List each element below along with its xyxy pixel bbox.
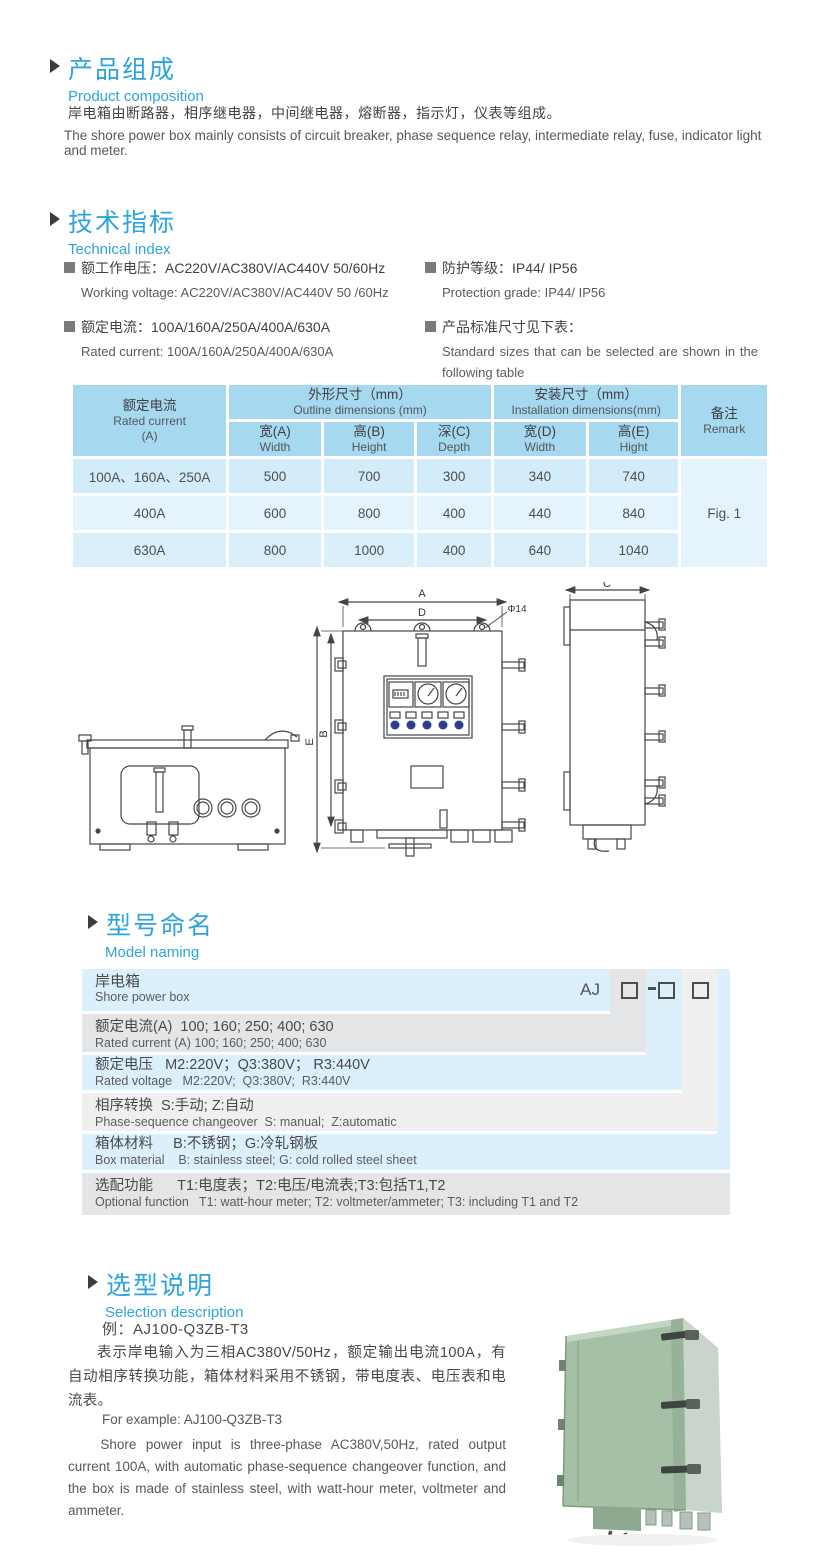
- section-arrow-icon: [88, 1275, 98, 1289]
- cell-remark: Fig. 1: [680, 458, 769, 569]
- cell-height-b: 1000: [322, 532, 415, 569]
- model-row-cn: 相序转换 S:手动; Z:自动: [95, 1098, 717, 1115]
- square-bullet-icon: [64, 262, 75, 273]
- bottom-view-drawing: [79, 726, 299, 850]
- cell-width-d: 640: [492, 532, 587, 569]
- header-cn: 额定电流: [75, 397, 224, 414]
- header-cn: 安装尺寸（mm）: [496, 386, 676, 403]
- header-en: Installation dimensions(mm): [496, 403, 676, 418]
- cell-width-a: 800: [228, 532, 323, 569]
- spec-cn: 产品标准尺寸见下表：: [442, 317, 582, 338]
- front-view-drawing: [317, 602, 525, 856]
- header-unit: (A): [75, 429, 224, 444]
- header-en: Rated current: [75, 414, 224, 429]
- table-row: 100A、160A、250A 500 700 300 340 740 Fig. …: [72, 458, 769, 495]
- section-title-cn: 技术指标: [68, 203, 176, 239]
- model-row-en: Rated current (A) 100; 160; 250; 400; 63…: [95, 1036, 646, 1051]
- cell-current: 100A、160A、250A: [72, 458, 228, 495]
- model-row-en: Phase-sequence changeover S: manual; Z:a…: [95, 1115, 717, 1130]
- cell-height-b: 800: [322, 495, 415, 532]
- cell-width-d: 440: [492, 495, 587, 532]
- dim-label-a: A: [418, 588, 426, 600]
- col-header-outline-dimensions: 外形尺寸（mm） Outline dimensions (mm): [228, 384, 493, 421]
- section-model-naming-header: 型号命名 Model naming: [88, 906, 214, 961]
- code-placeholder-box-1: [621, 982, 638, 999]
- selection-example-cn: 例：AJ100-Q3ZB-T3: [102, 1318, 249, 1339]
- cell-height-e: 1040: [587, 532, 680, 569]
- model-row-cn: 额定电流(A) 100; 160; 250; 400; 630: [95, 1019, 646, 1036]
- spec-column-left: 额工作电压：AC220V/AC380V/AC440V 50/60Hz Worki…: [64, 258, 425, 397]
- square-bullet-icon: [64, 321, 75, 332]
- header-cn: 宽(A): [231, 423, 319, 440]
- selection-body-en: Shore power input is three-phase AC380V,…: [68, 1434, 506, 1522]
- header-cn: 深(C): [419, 423, 489, 440]
- spec-cn: 额工作电压：AC220V/AC380V/AC440V 50/60Hz: [81, 258, 385, 279]
- spec-en: Working voltage: AC220V/AC380V/AC440V 50…: [81, 282, 425, 303]
- product-photo: [533, 1288, 823, 1568]
- col-header-height-e: 高(E) Hight: [587, 421, 680, 458]
- model-row-cn: 岸电箱: [95, 973, 610, 990]
- composition-text-en: The shore power box mainly consists of c…: [64, 128, 774, 158]
- header-en: Height: [326, 440, 412, 455]
- spec-column-right: 防护等级：IP44/ IP56 Protection grade: IP44/ …: [425, 258, 776, 397]
- header-cn: 高(B): [326, 423, 412, 440]
- header-en: Depth: [419, 440, 489, 455]
- model-code-prefix: AJ: [552, 969, 600, 1011]
- col-header-rated-current: 额定电流 Rated current (A): [72, 384, 228, 458]
- section-title-cn: 选型说明: [106, 1266, 214, 1302]
- header-en: Outline dimensions (mm): [231, 403, 489, 418]
- section-product-composition-header: 产品组成 Product composition: [50, 50, 204, 105]
- model-row-rated-voltage: 额定电压 M2:220V；Q3:380V； R3:440V Rated volt…: [82, 1055, 682, 1090]
- spec-cn: 防护等级：IP44/ IP56: [442, 258, 577, 279]
- cell-height-e: 840: [587, 495, 680, 532]
- header-en: Width: [496, 440, 584, 455]
- section-arrow-icon: [88, 915, 98, 929]
- spec-en: Rated current: 100A/160A/250A/400A/630A: [81, 341, 425, 362]
- code-placeholder-box-2: [658, 982, 675, 999]
- spec-rated-current: 额定电流：100A/160A/250A/400A/630A Rated curr…: [64, 317, 425, 368]
- model-row-en: Optional function T1: watt-hour meter; T…: [95, 1195, 730, 1210]
- col-header-width-d: 宽(D) Width: [492, 421, 587, 458]
- cell-width-d: 340: [492, 458, 587, 495]
- spec-cn: 额定电流：100A/160A/250A/400A/630A: [81, 317, 330, 338]
- header-en: Remark: [683, 422, 765, 437]
- cell-current: 400A: [72, 495, 228, 532]
- section-arrow-icon: [50, 59, 60, 73]
- side-view-drawing: [564, 590, 665, 851]
- spec-standard-sizes: 产品标准尺寸见下表： Standard sizes that can be se…: [425, 317, 776, 389]
- selection-example-en: For example: AJ100-Q3ZB-T3: [102, 1412, 282, 1427]
- model-naming-table: 岸电箱 Shore power box 额定电流(A) 100; 160; 25…: [82, 969, 730, 1215]
- spec-protection-grade: 防护等级：IP44/ IP56 Protection grade: IP44/ …: [425, 258, 776, 309]
- code-placeholder-box-3: [692, 982, 709, 999]
- spec-list: 额工作电压：AC220V/AC380V/AC440V 50/60Hz Worki…: [64, 258, 776, 397]
- model-row-cn: 额定电压 M2:220V；Q3:380V； R3:440V: [95, 1057, 682, 1074]
- model-row-shore-power-box: 岸电箱 Shore power box: [82, 969, 610, 1011]
- dim-label-d: D: [418, 607, 426, 619]
- cell-current: 630A: [72, 532, 228, 569]
- spec-en: Standard sizes that can be selected are …: [442, 341, 758, 383]
- cell-depth-c: 400: [416, 532, 493, 569]
- section-technical-index-header: 技术指标 Technical index: [50, 203, 176, 258]
- composition-text-cn: 岸电箱由断路器，相序继电器，中间继电器，熔断器，指示灯，仪表等组成。: [68, 103, 768, 123]
- indicator-lights: [390, 712, 464, 730]
- model-row-en: Box material B: stainless steel; G: cold…: [95, 1153, 730, 1168]
- code-dash: [648, 987, 656, 990]
- model-row-cn: 箱体材料 B:不锈钢；G:冷轧钢板: [95, 1136, 730, 1153]
- model-row-optional-function: 选配功能 T1:电度表；T2:电压/电流表;T3:包括T1,T2 Optiona…: [82, 1173, 730, 1215]
- col-header-width-a: 宽(A) Width: [228, 421, 323, 458]
- cell-depth-c: 400: [416, 495, 493, 532]
- model-row-cn: 选配功能 T1:电度表；T2:电压/电流表;T3:包括T1,T2: [95, 1178, 730, 1195]
- col-header-installation-dimensions: 安装尺寸（mm） Installation dimensions(mm): [492, 384, 679, 421]
- section-selection-description-header: 选型说明 Selection description: [88, 1266, 243, 1321]
- cell-height-b: 700: [322, 458, 415, 495]
- dim-label-phi14: Φ14: [507, 604, 527, 615]
- header-en: Width: [231, 440, 319, 455]
- dim-label-c: C: [603, 582, 611, 590]
- cell-width-a: 600: [228, 495, 323, 532]
- spec-en: Protection grade: IP44/ IP56: [442, 282, 776, 303]
- table-row: 400A 600 800 400 440 840: [72, 495, 769, 532]
- cell-height-e: 740: [587, 458, 680, 495]
- cell-depth-c: 300: [416, 458, 493, 495]
- model-row-box-material: 箱体材料 B:不锈钢；G:冷轧钢板 Box material B: stainl…: [82, 1134, 730, 1170]
- cell-width-a: 500: [228, 458, 323, 495]
- table-row: 630A 800 1000 400 640 1040: [72, 532, 769, 569]
- dim-label-b: B: [318, 730, 330, 737]
- col-header-height-b: 高(B) Height: [322, 421, 415, 458]
- dimensions-table: 额定电流 Rated current (A) 外形尺寸（mm） Outline …: [70, 382, 770, 570]
- square-bullet-icon: [425, 262, 436, 273]
- section-title-cn: 型号命名: [106, 906, 214, 942]
- model-row-en: Shore power box: [95, 990, 610, 1005]
- section-title-en: Model naming: [105, 944, 214, 961]
- header-cn: 外形尺寸（mm）: [231, 386, 489, 403]
- model-row-en: Rated voltage M2:220V; Q3:380V; R3:440V: [95, 1074, 682, 1089]
- spec-working-voltage: 额工作电压：AC220V/AC380V/AC440V 50/60Hz Worki…: [64, 258, 425, 309]
- header-cn: 备注: [683, 405, 765, 422]
- section-arrow-icon: [50, 212, 60, 226]
- technical-drawing: A D Φ14 E B C: [55, 582, 775, 892]
- col-header-remark: 备注 Remark: [680, 384, 769, 458]
- section-title-en: Technical index: [68, 241, 176, 258]
- selection-body-cn: 表示岸电输入为三相AC380V/50Hz，额定输出电流100A，有自动相序转换功…: [68, 1341, 506, 1413]
- square-bullet-icon: [425, 321, 436, 332]
- header-en: Hight: [591, 440, 677, 455]
- model-row-phase-changeover: 相序转换 S:手动; Z:自动 Phase-sequence changeove…: [82, 1093, 717, 1131]
- section-title-cn: 产品组成: [68, 50, 176, 86]
- dim-label-e: E: [304, 738, 316, 745]
- model-row-rated-current: 额定电流(A) 100; 160; 250; 400; 630 Rated cu…: [82, 1014, 646, 1052]
- header-cn: 高(E): [591, 423, 677, 440]
- col-header-depth-c: 深(C) Depth: [416, 421, 493, 458]
- datasheet-page: 产品组成 Product composition 岸电箱由断路器，相序继电器，中…: [0, 0, 830, 1568]
- header-cn: 宽(D): [496, 423, 584, 440]
